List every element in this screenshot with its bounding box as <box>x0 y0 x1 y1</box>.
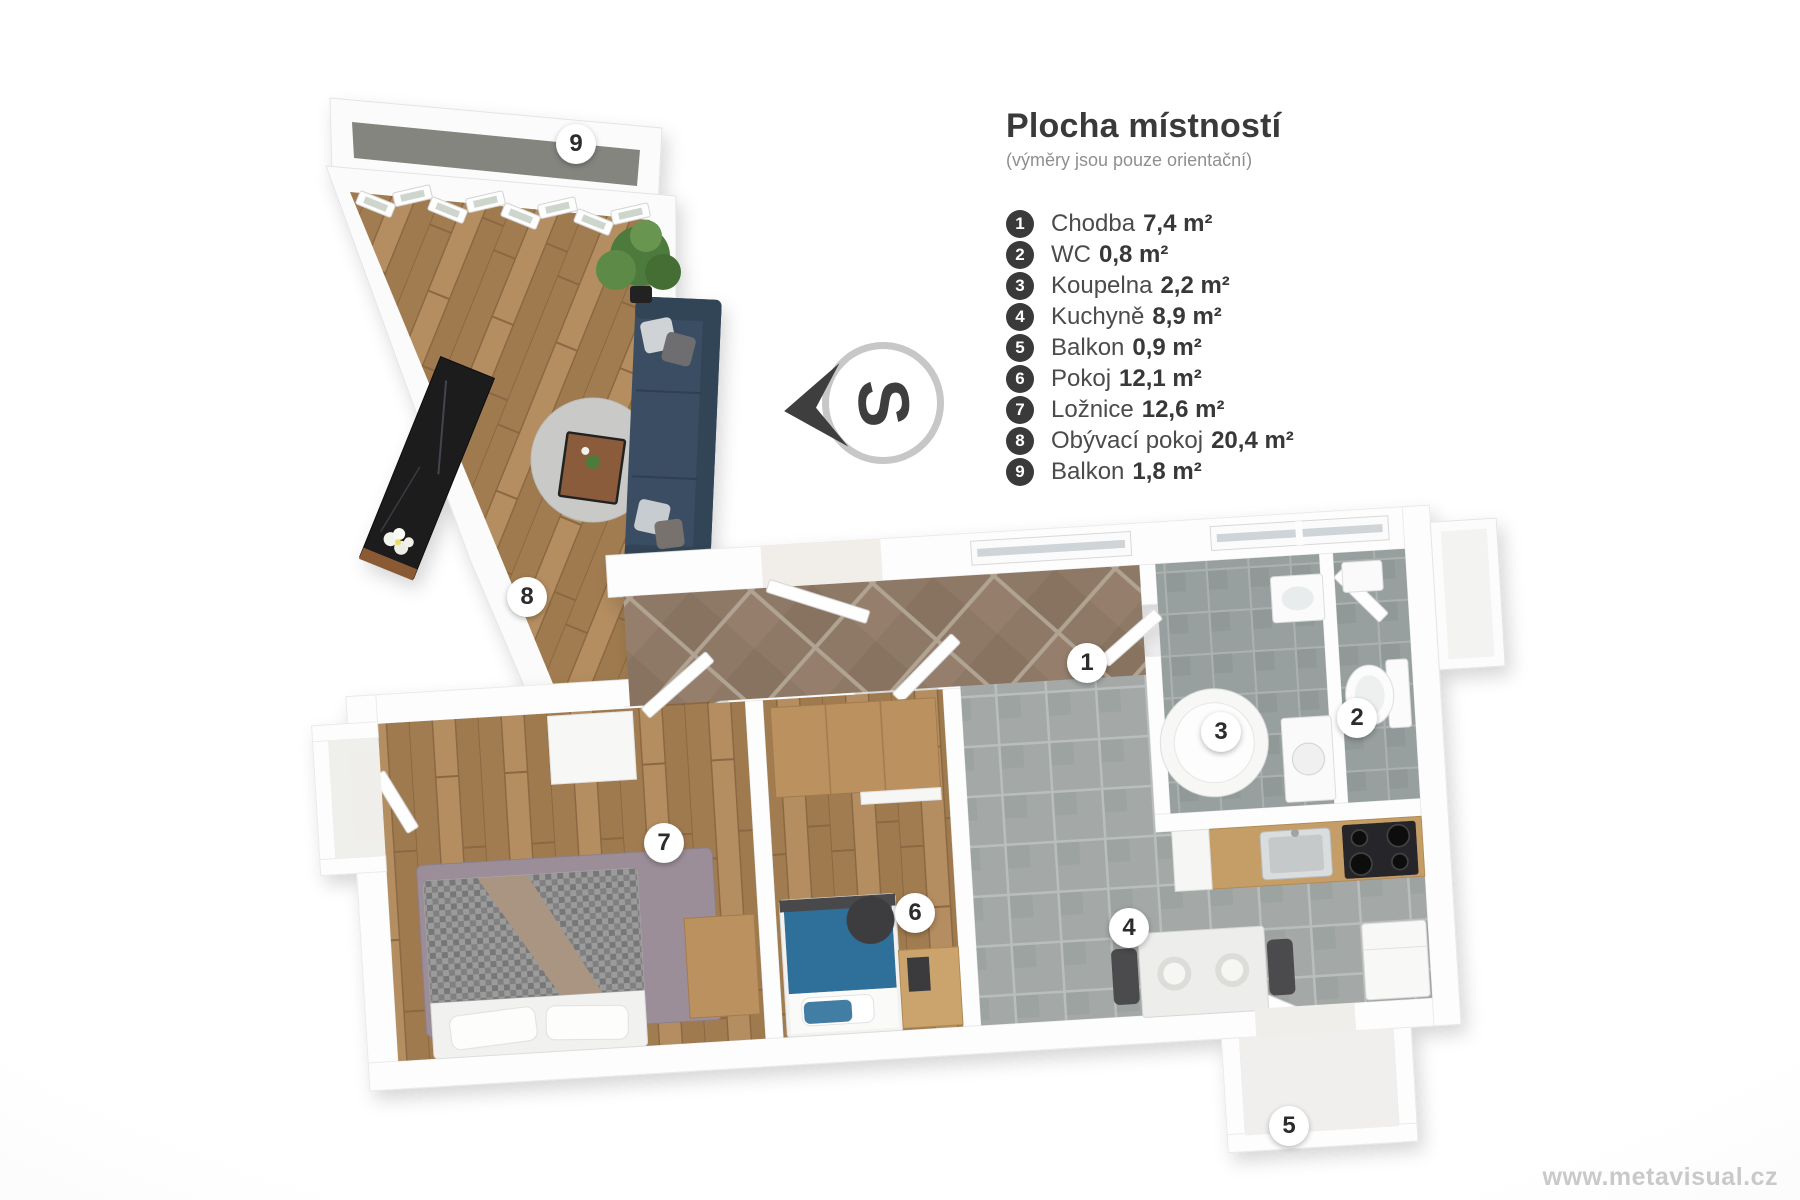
legend-item-area: 12,6 m² <box>1142 396 1225 424</box>
cooktop <box>1342 821 1419 879</box>
legend-subtitle: (výměry jsou pouze orientační) <box>1006 148 1466 172</box>
kids-wardrobe <box>770 698 941 810</box>
legend-item-number-badge: 7 <box>1006 396 1034 424</box>
legend-item: 6Pokoj12,1 m² <box>1006 363 1466 394</box>
bedroom-wardrobe <box>684 914 760 1018</box>
main-block <box>302 501 1533 1200</box>
legend-item-name: Kuchyně <box>1051 303 1144 331</box>
kitchen-cabinet <box>1172 829 1213 891</box>
room-number-badge: 2 <box>1337 698 1377 738</box>
legend-item-area: 7,4 m² <box>1143 210 1212 238</box>
legend-items: 1Chodba7,4 m² 2WC0,8 m² 3Koupelna2,2 m² … <box>1006 208 1466 487</box>
legend-item-name: Ložnice <box>1051 396 1134 424</box>
legend-item: 5Balkon0,9 m² <box>1006 332 1466 363</box>
legend-item-name: Balkon <box>1051 458 1124 486</box>
legend-item-number-badge: 6 <box>1006 365 1034 393</box>
legend-item-area: 0,9 m² <box>1132 334 1201 362</box>
room-number-badge: 4 <box>1109 908 1149 948</box>
room-number-badge: 3 <box>1201 712 1241 752</box>
kitchen-sink <box>1260 827 1333 880</box>
desk <box>898 947 963 1029</box>
room-number-badge: 5 <box>1269 1106 1309 1146</box>
legend-item-name: Obývací pokoj <box>1051 427 1203 455</box>
legend-item-number-badge: 4 <box>1006 303 1034 331</box>
shaft <box>1430 518 1505 670</box>
balcony-bottom-floor <box>1239 1028 1399 1135</box>
legend-item-area: 0,8 m² <box>1099 241 1168 269</box>
fridge <box>1362 920 1431 1000</box>
wc-sink <box>1342 560 1384 592</box>
legend-item-number-badge: 9 <box>1006 458 1034 486</box>
legend-item-name: WC <box>1051 241 1091 269</box>
legend-item: 1Chodba7,4 m² <box>1006 208 1466 239</box>
coffee-table <box>559 432 625 503</box>
double-bed <box>423 868 647 1059</box>
legend-item-name: Chodba <box>1051 210 1135 238</box>
legend-item: 2WC0,8 m² <box>1006 239 1466 270</box>
legend-item: 9Balkon1,8 m² <box>1006 456 1466 487</box>
watermark: www.metavisual.cz <box>1543 1163 1778 1192</box>
floor-plan: 123456789 <box>0 0 1800 1200</box>
room-number-badge: 7 <box>644 823 684 863</box>
legend-item-number-badge: 8 <box>1006 427 1034 455</box>
bathroom-sink <box>1270 574 1325 623</box>
legend-item-number-badge: 5 <box>1006 334 1034 362</box>
floor-plan-render <box>0 0 1800 1200</box>
legend-item-number-badge: 3 <box>1006 272 1034 300</box>
legend-item-area: 8,9 m² <box>1152 303 1221 331</box>
legend-item-name: Koupelna <box>1051 272 1152 300</box>
legend-item-area: 2,2 m² <box>1160 272 1229 300</box>
legend-item: 4Kuchyně8,9 m² <box>1006 301 1466 332</box>
room-number-badge: 1 <box>1067 643 1107 683</box>
compass-north-letter: S <box>845 377 920 430</box>
room-number-badge: 9 <box>556 124 596 164</box>
legend-item-name: Pokoj <box>1051 365 1111 393</box>
room-number-badge: 6 <box>895 893 935 933</box>
legend-item: 7Ložnice12,6 m² <box>1006 394 1466 425</box>
bedroom-corner-cabinet <box>547 711 636 784</box>
legend-title: Plocha místností <box>1006 104 1466 148</box>
legend: Plocha místností (výměry jsou pouze orie… <box>1006 104 1466 487</box>
legend-item-area: 1,8 m² <box>1132 458 1201 486</box>
legend-item: 8Obývací pokoj20,4 m² <box>1006 425 1466 456</box>
compass-arrow-icon <box>778 360 854 452</box>
legend-item-name: Balkon <box>1051 334 1124 362</box>
balcony-left <box>312 722 387 876</box>
legend-item-number-badge: 2 <box>1006 241 1034 269</box>
legend-item-area: 12,1 m² <box>1119 365 1202 393</box>
legend-item-number-badge: 1 <box>1006 210 1034 238</box>
room-number-badge: 8 <box>507 577 547 617</box>
legend-item-area: 20,4 m² <box>1211 427 1294 455</box>
legend-item: 3Koupelna2,2 m² <box>1006 270 1466 301</box>
sofa <box>624 296 722 569</box>
